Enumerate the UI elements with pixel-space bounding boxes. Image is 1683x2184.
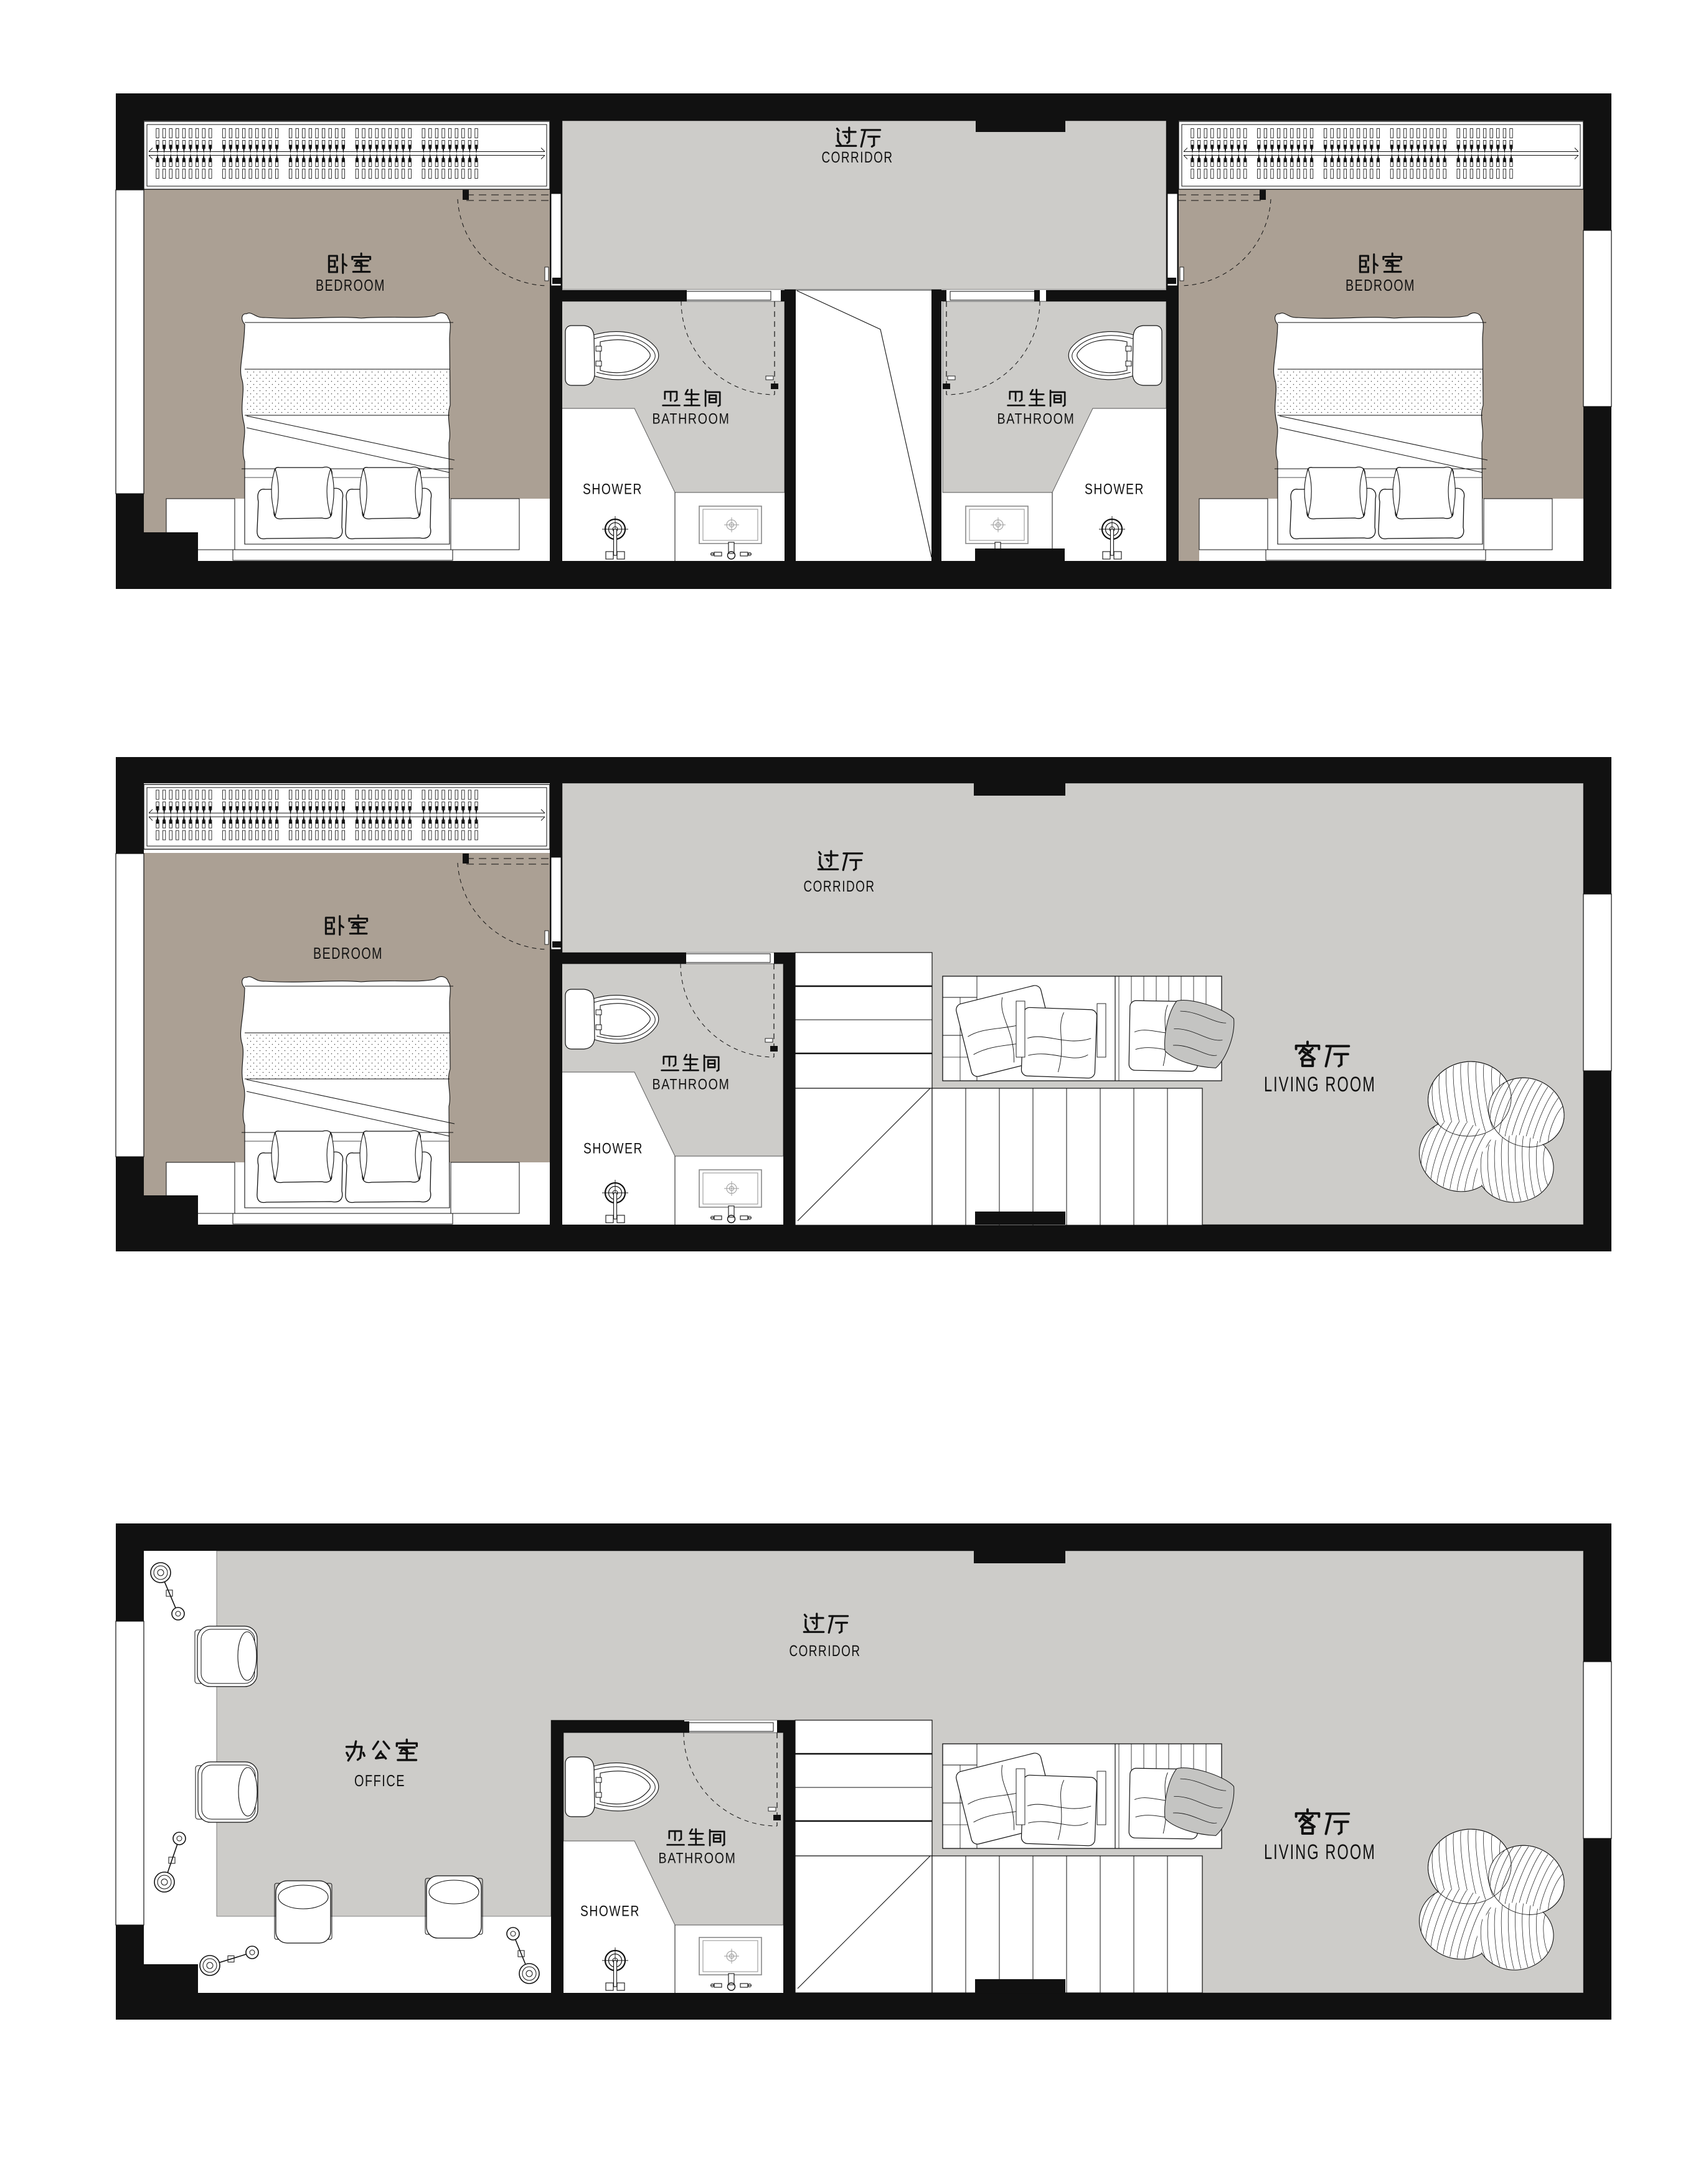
svg-text:BEDROOM: BEDROOM [316, 276, 385, 294]
svg-text:CORRIDOR: CORRIDOR [804, 878, 875, 895]
svg-text:SHOWER: SHOWER [583, 1141, 643, 1157]
svg-text:BATHROOM: BATHROOM [997, 411, 1075, 428]
svg-text:SHOWER: SHOWER [583, 481, 643, 498]
svg-text:BEDROOM: BEDROOM [313, 944, 383, 963]
svg-text:LIVING ROOM: LIVING ROOM [1264, 1840, 1376, 1864]
svg-text:SHOWER: SHOWER [580, 1903, 640, 1920]
svg-text:LIVING ROOM: LIVING ROOM [1264, 1073, 1376, 1096]
svg-text:BATHROOM: BATHROOM [653, 411, 730, 428]
svg-text:BEDROOM: BEDROOM [1346, 276, 1415, 294]
svg-text:BATHROOM: BATHROOM [659, 1850, 737, 1867]
svg-text:CORRIDOR: CORRIDOR [822, 149, 893, 166]
svg-text:BATHROOM: BATHROOM [653, 1076, 730, 1093]
svg-text:SHOWER: SHOWER [1085, 481, 1144, 498]
svg-text:CORRIDOR: CORRIDOR [790, 1642, 861, 1660]
svg-text:OFFICE: OFFICE [354, 1771, 405, 1790]
